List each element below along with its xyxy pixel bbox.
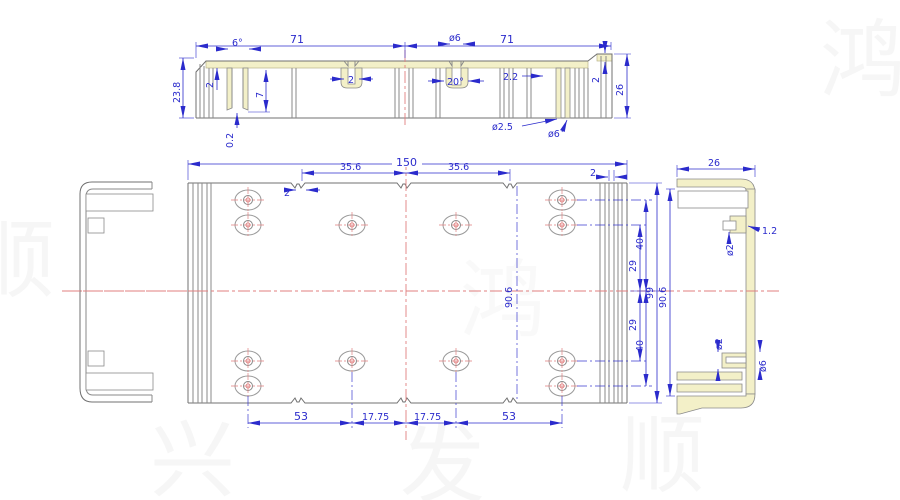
- dim-height-right: 26: [615, 84, 626, 96]
- dim-inner-height: 90.6: [504, 287, 515, 308]
- dim-row-outer-bottom: 40: [635, 340, 646, 352]
- side-bottom-boss: [722, 353, 746, 368]
- watermark-glyph: 鸿: [460, 252, 545, 351]
- dim-screw-hole-minor: ø2.5: [492, 122, 513, 133]
- dim-boss-hole-bottom: ø2: [714, 338, 725, 350]
- side-wall-fill: [746, 189, 755, 394]
- right-wall-ribs: [600, 183, 622, 403]
- dim-channel-angle: 20°: [447, 77, 464, 88]
- dim-slot-width: 2: [348, 75, 354, 86]
- dim-col-right: 53: [502, 410, 516, 423]
- cover-bottom-tab: [88, 351, 104, 366]
- dim-top-wall: 2: [205, 82, 216, 88]
- dim-boss-depth: 7: [255, 92, 266, 98]
- dim-width-left: 71: [290, 33, 304, 46]
- dim-wall-slot: 2: [590, 168, 596, 179]
- dim-row-outer-top: 40: [635, 238, 646, 250]
- dim-boss-lip: 1.2: [762, 226, 777, 237]
- dim-row-inner-bottom: 29: [628, 319, 639, 331]
- dim-overall-width: 150: [396, 156, 417, 169]
- dim-screw-hole-major: ø6: [548, 129, 560, 140]
- cover-bottom-rib: [86, 373, 153, 390]
- dim-groove-pitch-left: 35.6: [340, 162, 361, 173]
- cad-drawing-canvas: 鸿 顺 兴 发 顺 鸿: [0, 0, 900, 500]
- side-bottom-outer-fill: [677, 394, 755, 414]
- dim-row-inner-top: 29: [628, 260, 639, 272]
- left-end-ribs: [200, 64, 213, 118]
- dim-channel-dia: ø6: [449, 33, 461, 44]
- cover-top-tab: [88, 218, 104, 233]
- right-lip-fill: [597, 54, 612, 61]
- dim-overall-height: 99: [645, 287, 656, 299]
- side-top-boss: [723, 216, 746, 233]
- left-wall-ribs: [193, 183, 211, 403]
- left-side-view: [62, 182, 200, 402]
- dim-col-mid-right: 17.75: [414, 412, 441, 423]
- watermark-glyph: 兴: [150, 412, 235, 500]
- top-wall-section-fill: [206, 61, 588, 68]
- top-section-view: 71 71 6° ø6 23.8 2 7 0.2 2: [172, 33, 631, 148]
- dim-lip-inset: 2.2: [503, 72, 518, 83]
- screw-hole-channel: [556, 68, 570, 118]
- cover-outer-profile: [80, 182, 152, 402]
- front-view: 90.6 150 35.6 35.6 2 2: [70, 156, 672, 440]
- side-bottom-rib-fill: [677, 384, 742, 392]
- dim-side-inner-height: 90.6: [658, 287, 669, 308]
- cover-top-rib: [86, 194, 153, 211]
- plate-bottom-edge: [188, 398, 627, 403]
- dim-taper-angle: 6°: [232, 38, 243, 49]
- front-right-dimensions: 29 40 29 40 99: [577, 183, 662, 403]
- side-inner-lip: [678, 191, 748, 208]
- plate-top-edge: [188, 183, 627, 188]
- dim-col-mid-left: 17.75: [362, 412, 389, 423]
- watermark-glyph: 鸿: [820, 12, 900, 111]
- dim-boss-outer: ø6: [758, 360, 769, 372]
- dim-col-left: 53: [294, 410, 308, 423]
- dim-gap: 0.2: [225, 133, 236, 148]
- dim-side-width: 26: [708, 158, 720, 169]
- dim-lip-height: 2: [591, 77, 602, 83]
- dim-boss-hole-top: ø2: [725, 244, 736, 256]
- watermark-glyph: 顺: [0, 212, 55, 311]
- screw-boss-left: [227, 68, 248, 110]
- watermark-glyph: 发: [400, 417, 485, 500]
- right-side-view: 26 90.6 ø2 1.2 ø2 ø6: [658, 158, 780, 414]
- watermark-glyph: 顺: [620, 407, 705, 500]
- side-bottom-flange-fill: [677, 372, 742, 380]
- dim-width-right: 71: [500, 33, 514, 46]
- top-section-dimensions: 71 71 6° ø6 23.8 2 7 0.2 2: [172, 33, 631, 148]
- dim-groove-width: 2: [284, 188, 290, 199]
- dim-groove-pitch-right: 35.6: [448, 162, 469, 173]
- dim-height-left: 23.8: [172, 82, 183, 103]
